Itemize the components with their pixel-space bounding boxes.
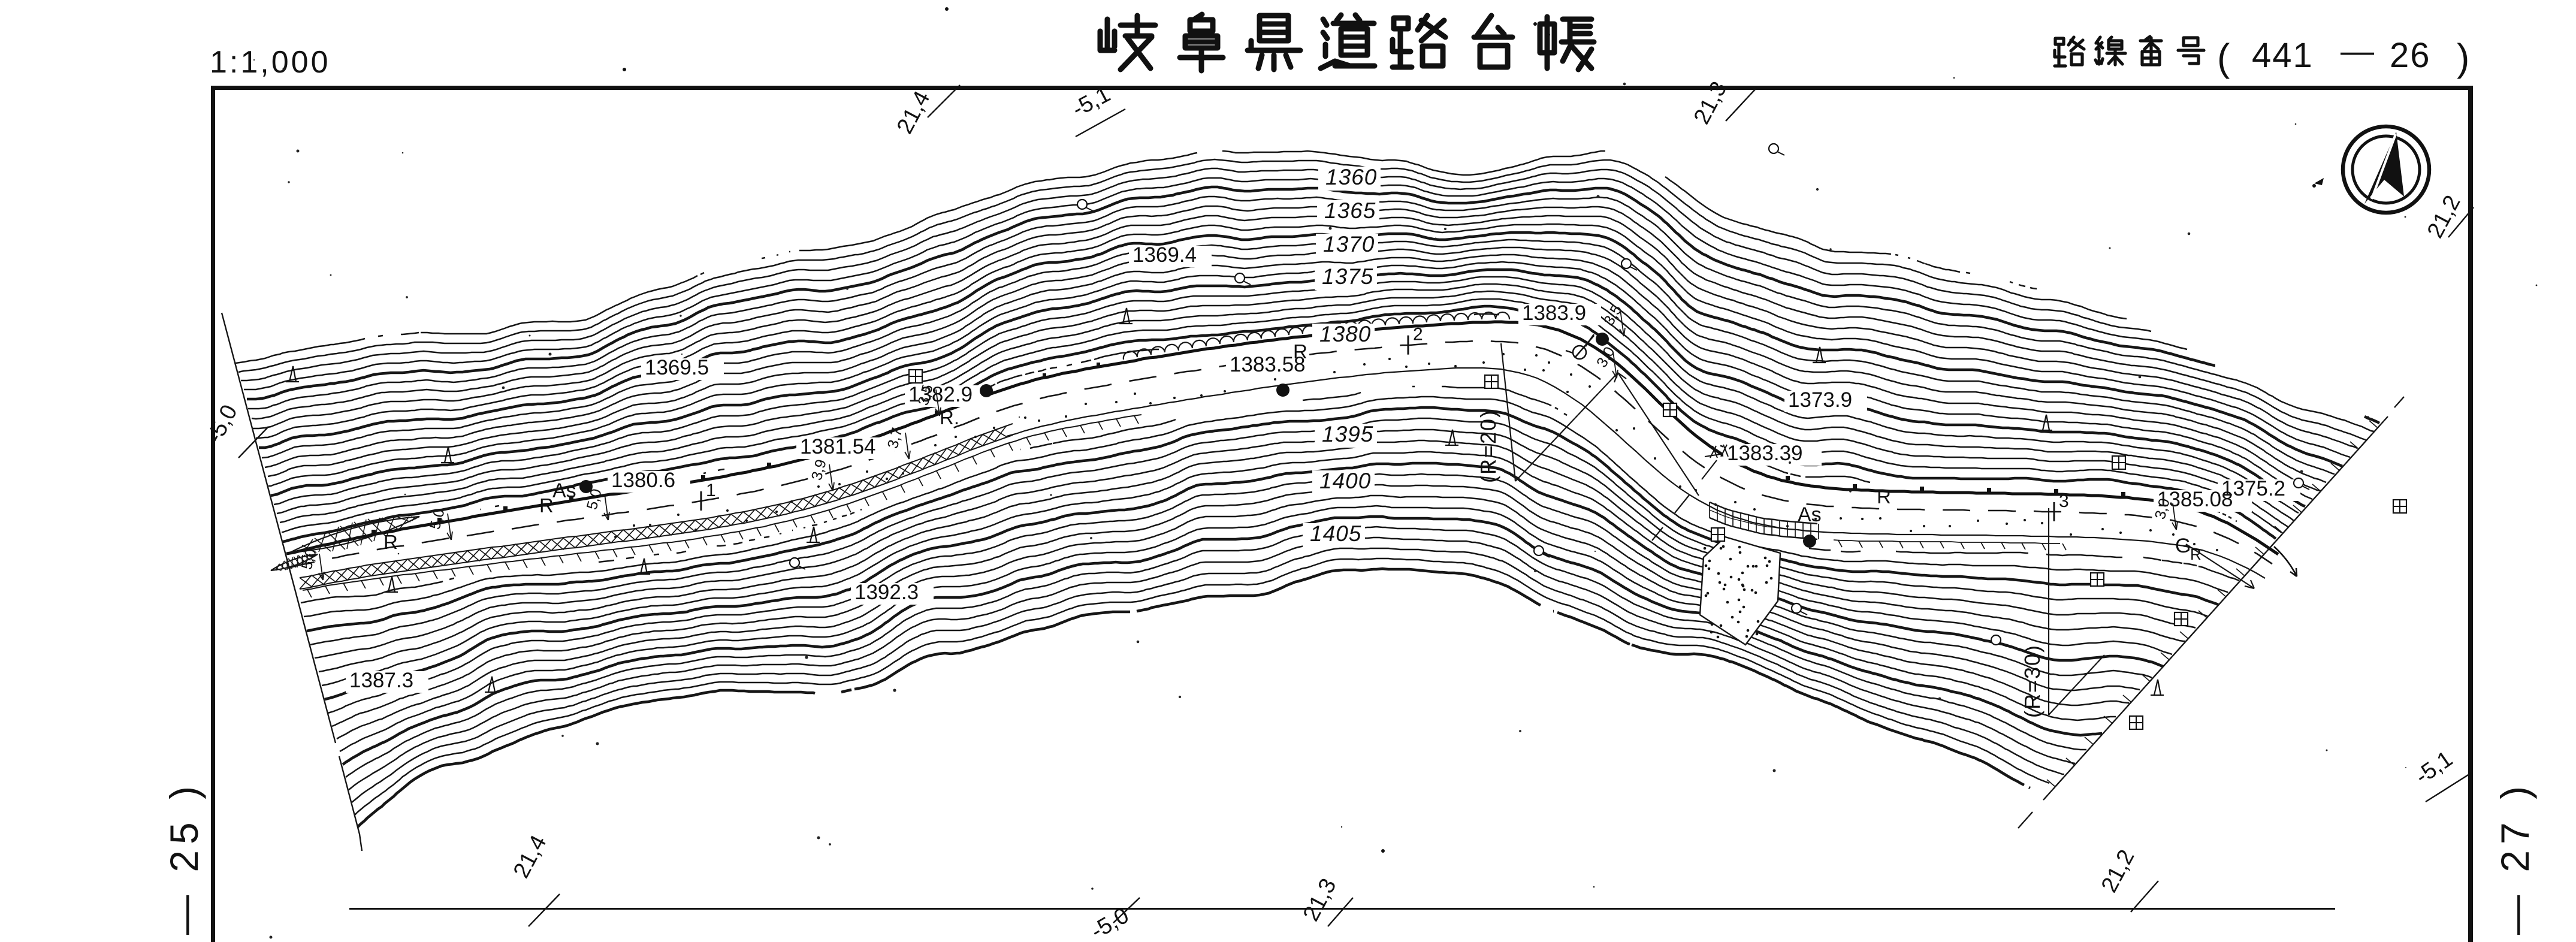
svg-text:1369.4: 1369.4 — [1133, 243, 1197, 267]
svg-text:1381.54: 1381.54 — [800, 435, 876, 458]
svg-text:G: G — [2175, 535, 2191, 557]
svg-text:1387.3: 1387.3 — [349, 669, 413, 692]
svg-text:As: As — [552, 479, 576, 502]
svg-text:): ) — [2457, 36, 2469, 79]
svg-text:3: 3 — [2059, 491, 2069, 511]
svg-text:(R=30): (R=30) — [2020, 644, 2045, 718]
svg-text:2: 2 — [1413, 325, 1423, 345]
svg-text:1:1,000: 1:1,000 — [210, 45, 331, 80]
svg-text:26: 26 — [2390, 36, 2431, 75]
svg-text:1380.6: 1380.6 — [611, 469, 675, 492]
svg-text:R: R — [1293, 340, 1307, 363]
svg-text:1392.3: 1392.3 — [854, 581, 919, 604]
svg-text:441: 441 — [2252, 36, 2314, 75]
svg-text:1365: 1365 — [1324, 198, 1376, 223]
svg-text:1370: 1370 — [1323, 232, 1375, 256]
svg-text:As: As — [1798, 503, 1822, 526]
svg-text:1373.9: 1373.9 — [1788, 388, 1852, 412]
svg-text:— 27 ): — 27 ) — [2493, 780, 2537, 935]
svg-text:1405: 1405 — [1310, 521, 1361, 546]
svg-text:1395: 1395 — [1322, 422, 1373, 446]
svg-text:(: ( — [2217, 36, 2230, 79]
svg-text:R: R — [383, 531, 398, 553]
svg-text:1383.9: 1383.9 — [1522, 301, 1586, 325]
svg-text:1375: 1375 — [1322, 264, 1373, 289]
svg-text:— 25 ): — 25 ) — [162, 780, 206, 935]
svg-text:R: R — [1877, 485, 1891, 508]
svg-text:1369.5: 1369.5 — [645, 356, 709, 379]
svg-text:1400: 1400 — [1319, 469, 1371, 493]
svg-text:1360: 1360 — [1325, 165, 1377, 189]
svg-text:1383.39: 1383.39 — [1727, 442, 1803, 465]
svg-text:(R=20): (R=20) — [1476, 409, 1500, 483]
svg-text:—: — — [2341, 32, 2374, 70]
svg-text:R: R — [539, 494, 554, 517]
svg-text:R.: R. — [940, 406, 959, 428]
svg-text:1: 1 — [706, 481, 716, 500]
svg-text:1380: 1380 — [1319, 322, 1371, 346]
svg-text:R: R — [2190, 545, 2201, 563]
svg-text:1375.2: 1375.2 — [2221, 477, 2285, 500]
